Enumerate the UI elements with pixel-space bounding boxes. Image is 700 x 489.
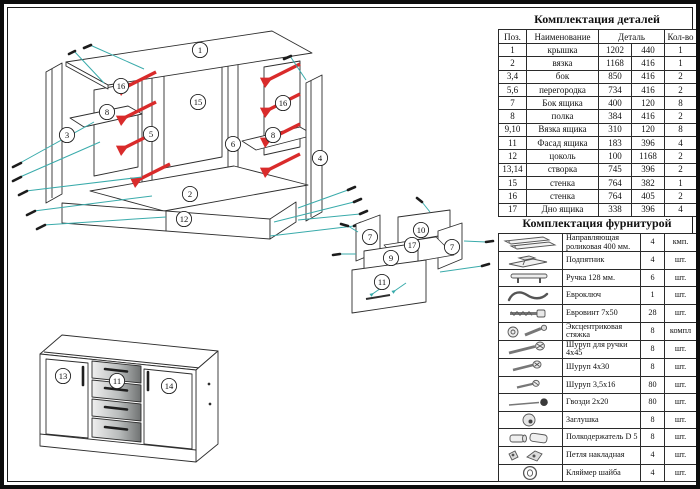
cell-hardware-qty: 8 [641, 359, 665, 377]
bottom-panel-2 [90, 166, 308, 211]
screw-large-icon [499, 340, 563, 358]
cell-name: стенка [527, 190, 599, 203]
svg-text:7: 7 [368, 232, 373, 242]
cell-width: 310 [599, 123, 632, 136]
table-row: 9,10Вязка ящика3101208 [499, 123, 697, 136]
cell-width: 100 [599, 150, 632, 163]
cell-height: 396 [632, 203, 665, 216]
svg-text:7: 7 [450, 242, 455, 252]
cell-name: крышка [527, 44, 599, 57]
cell-height: 1168 [632, 150, 665, 163]
cell-hardware-name: Подпятник [563, 252, 641, 270]
cell-name: Фасад ящика [527, 137, 599, 150]
table-row: Шуруп 3,5x1680шт. [499, 376, 697, 394]
cell-pos: 12 [499, 150, 527, 163]
svg-text:4: 4 [318, 153, 323, 163]
cell-width: 338 [599, 203, 632, 216]
cell-width: 1168 [599, 57, 632, 70]
cell-hardware-name: Эксцентриковая стяжка [563, 322, 641, 340]
svg-text:11: 11 [378, 277, 386, 287]
cell-width: 183 [599, 137, 632, 150]
cell-height: 405 [632, 190, 665, 203]
cell-height: 396 [632, 163, 665, 176]
cabinet-right-face [196, 351, 218, 462]
callout-13: 13 [55, 368, 70, 383]
cell-hardware-name: Шуруп для ручки 4x45 [563, 340, 641, 358]
callout-17: 17 [404, 237, 419, 252]
svg-text:12: 12 [180, 214, 189, 224]
roller-guide-icon [499, 234, 563, 252]
cell-pos: 17 [499, 203, 527, 216]
cell-name: Бок ящика [527, 97, 599, 110]
table-row: Гвозди 2x2080шт. [499, 394, 697, 412]
table-row: Направляющая роликовая 400 мм.4кмп. [499, 234, 697, 252]
hardware-table-title: Комплектация фурнитурой [498, 216, 696, 231]
cell-width: 1202 [599, 44, 632, 57]
cell-hardware-unit: шт. [665, 359, 697, 377]
hardware-table: Направляющая роликовая 400 мм.4кмп.Подпя… [498, 233, 697, 482]
cell-qty: 2 [665, 190, 697, 203]
table-row: 8полка3844162 [499, 110, 697, 123]
svg-text:10: 10 [417, 225, 426, 235]
table-row: Ручка 128 мм.6шт. [499, 269, 697, 287]
parts-table-title: Комплектация деталей [498, 12, 696, 27]
svg-text:6: 6 [231, 139, 236, 149]
svg-text:15: 15 [194, 97, 203, 107]
callout-11: 11 [109, 373, 124, 388]
svg-text:16: 16 [279, 98, 288, 108]
parts-table-header-row: Поз. Наименование Деталь Кол-во [499, 30, 697, 44]
handle-icon [499, 269, 563, 287]
cell-hardware-name: Направляющая роликовая 400 мм. [563, 234, 641, 252]
callout-9: 9 [383, 250, 398, 265]
callout-1: 1 [192, 42, 207, 57]
svg-text:14: 14 [165, 381, 174, 391]
cell-hardware-qty: 4 [641, 447, 665, 465]
cell-qty: 1 [665, 44, 697, 57]
svg-text:17: 17 [408, 240, 417, 250]
cell-hardware-unit: шт. [665, 411, 697, 429]
cell-height: 416 [632, 110, 665, 123]
cell-height: 416 [632, 83, 665, 96]
cell-qty: 8 [665, 97, 697, 110]
svg-text:8: 8 [271, 130, 275, 140]
callout-16: 16 [113, 78, 128, 93]
callout-11: 11 [374, 274, 389, 289]
confirmat-icon [499, 305, 563, 323]
hex-key-icon [499, 287, 563, 305]
foot-icon [499, 252, 563, 270]
cell-width: 745 [599, 163, 632, 176]
cell-height: 382 [632, 176, 665, 189]
callout-2: 2 [182, 186, 197, 201]
table-row: Евроключ1шт. [499, 287, 697, 305]
callout-15: 15 [190, 94, 205, 109]
side-panel-4 [306, 75, 322, 221]
cell-hardware-unit: шт. [665, 340, 697, 358]
cell-hardware-unit: шт. [665, 464, 697, 482]
callout-8: 8 [265, 127, 280, 142]
cell-height: 120 [632, 97, 665, 110]
cell-hardware-unit: шт. [665, 376, 697, 394]
svg-text:3: 3 [65, 130, 69, 140]
table-row: Евровинт 7x5028шт. [499, 305, 697, 323]
cell-height: 416 [632, 57, 665, 70]
cell-width: 764 [599, 176, 632, 189]
svg-text:16: 16 [117, 81, 126, 91]
cell-pos: 5,6 [499, 83, 527, 96]
cam-lock-icon [499, 322, 563, 340]
cell-hardware-unit: шт. [665, 287, 697, 305]
svg-text:13: 13 [59, 371, 68, 381]
cell-hardware-unit: компл [665, 322, 697, 340]
callout-6: 6 [225, 136, 240, 151]
cell-hardware-name: Шуруп 4x30 [563, 359, 641, 377]
cell-pos: 8 [499, 110, 527, 123]
cell-qty: 2 [665, 150, 697, 163]
table-row: 15стенка7643821 [499, 176, 697, 189]
cell-height: 416 [632, 70, 665, 83]
table-row: Шуруп для ручки 4x458шт. [499, 340, 697, 358]
table-row: Заглушка8шт. [499, 411, 697, 429]
cell-qty: 2 [665, 163, 697, 176]
cell-name: цоколь [527, 150, 599, 163]
callout-3: 3 [59, 127, 74, 142]
table-row: Шуруп 4x308шт. [499, 359, 697, 377]
cell-hardware-unit: кмп. [665, 234, 697, 252]
cell-pos: 11 [499, 137, 527, 150]
cell-height: 120 [632, 123, 665, 136]
assembly-diagram: 1316851561684212710177911131114 [4, 4, 496, 489]
table-row: Подпятник4шт. [499, 252, 697, 270]
cell-hardware-qty: 8 [641, 340, 665, 358]
cell-hardware-name: Ручка 128 мм. [563, 269, 641, 287]
svg-text:9: 9 [389, 253, 393, 263]
table-row: 17Дно ящика3383964 [499, 203, 697, 216]
cell-height: 440 [632, 44, 665, 57]
cell-name: перегородка [527, 83, 599, 96]
back-panel-15 [164, 65, 222, 168]
back-panel-16-left [94, 82, 138, 176]
table-row: 1крышка12024401 [499, 44, 697, 57]
svg-text:2: 2 [188, 189, 192, 199]
cell-pos: 2 [499, 57, 527, 70]
drawer-assembly-diagram [352, 210, 462, 313]
washer-icon [499, 464, 563, 482]
cell-width: 850 [599, 70, 632, 83]
cell-hardware-qty: 1 [641, 287, 665, 305]
cell-pos: 7 [499, 97, 527, 110]
table-row: 5,6перегородка7344162 [499, 83, 697, 96]
table-row: 12цоколь10011682 [499, 150, 697, 163]
cell-hardware-qty: 4 [641, 252, 665, 270]
table-row: Полкодержатель D 58шт. [499, 429, 697, 447]
callout-10: 10 [413, 222, 428, 237]
cell-hardware-qty: 6 [641, 269, 665, 287]
instruction-sheet: 1316851561684212710177911131114 Комплект… [0, 0, 700, 489]
parts-table-section: Комплектация деталей Поз. Наименование Д… [498, 12, 696, 217]
cell-hardware-qty: 28 [641, 305, 665, 323]
cell-hardware-unit: шт. [665, 305, 697, 323]
table-row: 13,14створка7453962 [499, 163, 697, 176]
cell-qty: 8 [665, 123, 697, 136]
cell-width: 400 [599, 97, 632, 110]
table-row: 7Бок ящика4001208 [499, 97, 697, 110]
cell-hardware-name: Петля накладная [563, 447, 641, 465]
cell-hardware-name: Гвозди 2x20 [563, 394, 641, 412]
cell-hardware-name: Заглушка [563, 411, 641, 429]
screw-small-icon [499, 376, 563, 394]
table-row: 2вязка11684161 [499, 57, 697, 70]
cell-qty: 2 [665, 70, 697, 83]
cell-hardware-name: Евроключ [563, 287, 641, 305]
table-row: Эксцентриковая стяжка8компл [499, 322, 697, 340]
partition-6 [228, 53, 238, 182]
table-row: Петля накладная4шт. [499, 447, 697, 465]
callout-4: 4 [312, 150, 327, 165]
header-detail: Деталь [599, 30, 665, 44]
cell-hardware-name: Полкодержатель D 5 [563, 429, 641, 447]
screw-medium-icon [499, 359, 563, 377]
callout-16: 16 [275, 95, 290, 110]
cell-pos: 1 [499, 44, 527, 57]
cell-qty: 2 [665, 83, 697, 96]
cell-qty: 4 [665, 137, 697, 150]
table-row: Кляймер шайба4шт. [499, 464, 697, 482]
assembled-cabinet-diagram [40, 335, 218, 462]
table-row: 3,4бок8504162 [499, 70, 697, 83]
cell-qty: 2 [665, 110, 697, 123]
cell-pos: 15 [499, 176, 527, 189]
cell-width: 734 [599, 83, 632, 96]
callout-7: 7 [362, 229, 377, 244]
cell-name: полка [527, 110, 599, 123]
table-row: 16стенка7644052 [499, 190, 697, 203]
cell-hardware-qty: 80 [641, 394, 665, 412]
cell-hardware-qty: 4 [641, 464, 665, 482]
callout-14: 14 [161, 378, 176, 393]
header-pos: Поз. [499, 30, 527, 44]
cell-pos: 3,4 [499, 70, 527, 83]
cell-name: створка [527, 163, 599, 176]
svg-text:1: 1 [198, 45, 202, 55]
cap-icon [499, 411, 563, 429]
header-name: Наименование [527, 30, 599, 44]
cell-qty: 1 [665, 57, 697, 70]
shelf-pin-icon [499, 429, 563, 447]
header-qty: Кол-во [665, 30, 697, 44]
cell-hardware-unit: шт. [665, 269, 697, 287]
cell-hardware-name: Шуруп 3,5x16 [563, 376, 641, 394]
cell-pos: 13,14 [499, 163, 527, 176]
hardware-table-section: Комплектация фурнитурой Направляющая рол… [498, 216, 696, 482]
cell-hardware-unit: шт. [665, 429, 697, 447]
cell-name: Дно ящика [527, 203, 599, 216]
cell-pos: 16 [499, 190, 527, 203]
cell-name: Вязка ящика [527, 123, 599, 136]
cell-hardware-unit: шт. [665, 252, 697, 270]
callout-7: 7 [444, 239, 459, 254]
cell-qty: 4 [665, 203, 697, 216]
cell-hardware-name: Евровинт 7x50 [563, 305, 641, 323]
nail-icon [499, 394, 563, 412]
parts-table: Поз. Наименование Деталь Кол-во 1крышка1… [498, 29, 697, 217]
cell-pos: 9,10 [499, 123, 527, 136]
cell-hardware-unit: шт. [665, 447, 697, 465]
svg-text:11: 11 [113, 376, 121, 386]
cell-hardware-qty: 8 [641, 429, 665, 447]
cell-hardware-qty: 4 [641, 234, 665, 252]
cell-name: вязка [527, 57, 599, 70]
callout-8: 8 [99, 104, 114, 119]
cell-hardware-qty: 8 [641, 322, 665, 340]
cell-name: бок [527, 70, 599, 83]
drawer-facade-11 [352, 260, 426, 313]
svg-text:8: 8 [105, 107, 109, 117]
cell-hardware-qty: 8 [641, 411, 665, 429]
cell-hardware-unit: шт. [665, 394, 697, 412]
cell-name: стенка [527, 176, 599, 189]
cell-qty: 1 [665, 176, 697, 189]
cell-height: 396 [632, 137, 665, 150]
cell-width: 384 [599, 110, 632, 123]
cell-width: 764 [599, 190, 632, 203]
svg-text:5: 5 [149, 129, 153, 139]
callout-5: 5 [143, 126, 158, 141]
callout-12: 12 [176, 211, 191, 226]
cell-hardware-name: Кляймер шайба [563, 464, 641, 482]
table-row: 11Фасад ящика1833964 [499, 137, 697, 150]
cell-hardware-qty: 80 [641, 376, 665, 394]
hinge-icon [499, 447, 563, 465]
